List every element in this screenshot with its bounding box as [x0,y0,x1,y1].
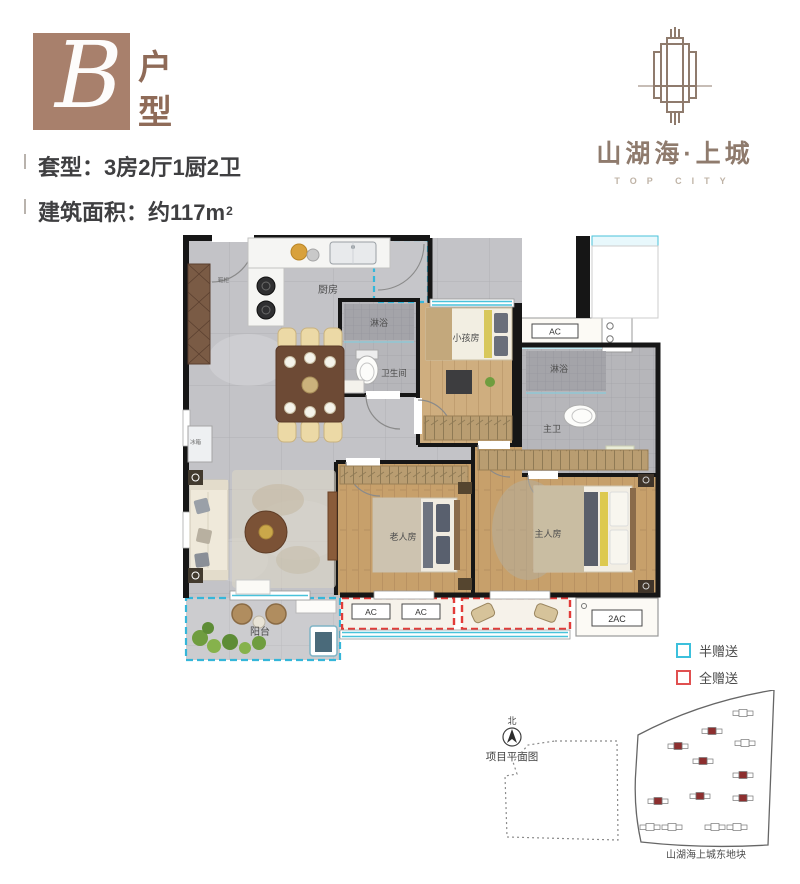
gift-zone-left: AC AC [342,598,454,629]
shoe-cabinet [188,264,210,364]
ac-label-2ac: 2AC [608,614,626,624]
fridge-label: 冰箱 [190,438,202,446]
half-gift-label: 半赠送 [699,641,738,660]
toilet [564,405,596,427]
ac-platform-top: AC [520,236,658,352]
brand-subtitle: TOP CITY [568,176,782,186]
full-gift-swatch-icon [676,670,691,685]
spec-area-text: 建筑面积：约117m [38,195,225,227]
brand-logo: 山湖海·上城 TOP CITY [568,26,782,186]
bottom-window [340,630,570,639]
tv-console [328,492,337,560]
ac-label-2: AC [415,607,427,617]
compass: 北 项目平面图 [486,716,539,763]
unit-badge: B [33,33,130,130]
floor-plan-svg: AC AC 2AC AC [178,230,668,672]
ac-label-1: AC [365,607,377,617]
legend-half-row: 半赠送 [676,641,738,660]
full-gift-label: 全赠送 [699,668,738,687]
tick-mark [24,199,26,214]
kids-room-label: 小孩房 [452,332,479,343]
spec-type-line: 套型：3房2厅1厨2卫 [24,152,241,180]
spec-area-sup: 2 [226,204,233,218]
unit-letter: B [55,25,123,126]
elder-room-label: 老人房 [389,531,416,542]
half-gift-swatch-icon [676,643,691,658]
brand-emblem-icon [636,26,714,128]
gift-zone-right [462,598,570,629]
balcony-chair [232,604,252,624]
siteplan-caption: 项目平面图 [486,751,539,763]
legend-full-row: 全赠送 [676,668,738,687]
ac-label-3: AC [549,327,561,337]
spec-type-text: 套型：3房2厅1厨2卫 [38,150,241,182]
master-bath-label: 主卫 [543,423,561,434]
east-plot-buildings [640,710,755,831]
east-plot-label: 山湖海上城东地块 [666,848,746,861]
kids-desk [446,370,472,394]
tick-mark [24,154,26,169]
elder-wardrobe [340,466,468,484]
master-shower-label: 淋浴 [550,363,568,374]
guest-bath-label: 卫生间 [381,368,407,378]
ac-platform-bottom: 2AC [576,598,658,636]
spec-area-line: 建筑面积：约117m2 [24,197,233,225]
balcony-chair [266,604,286,624]
brand-name: 山湖海·上城 [568,134,782,170]
balcony-label: 阳台 [250,625,270,638]
master-room-label: 主人房 [534,528,561,539]
kitchen-label: 厨房 [318,283,338,296]
stove-burner [257,277,275,295]
site-plan: 北 项目平面图 山湖海上城东地块 [460,690,790,880]
site-plan-svg: 北 项目平面图 山湖海上城东地块 [460,690,790,880]
unit-type-label: 户型 [138,46,178,136]
guest-shower-label: 淋浴 [370,317,388,328]
gift-legend: 半赠送 全赠送 [676,641,738,695]
stove-burner [257,301,275,319]
master-wardrobe [478,450,648,470]
page: B 户型 套型：3房2厅1厨2卫 建筑面积：约117m2 山湖海·上城 TOP … [0,0,800,884]
kids-wardrobe [424,416,512,440]
shoe-cabinet-label: 鞋柜 [218,276,230,284]
north-label: 北 [507,716,516,726]
floor-plan: AC AC 2AC AC [178,230,668,672]
